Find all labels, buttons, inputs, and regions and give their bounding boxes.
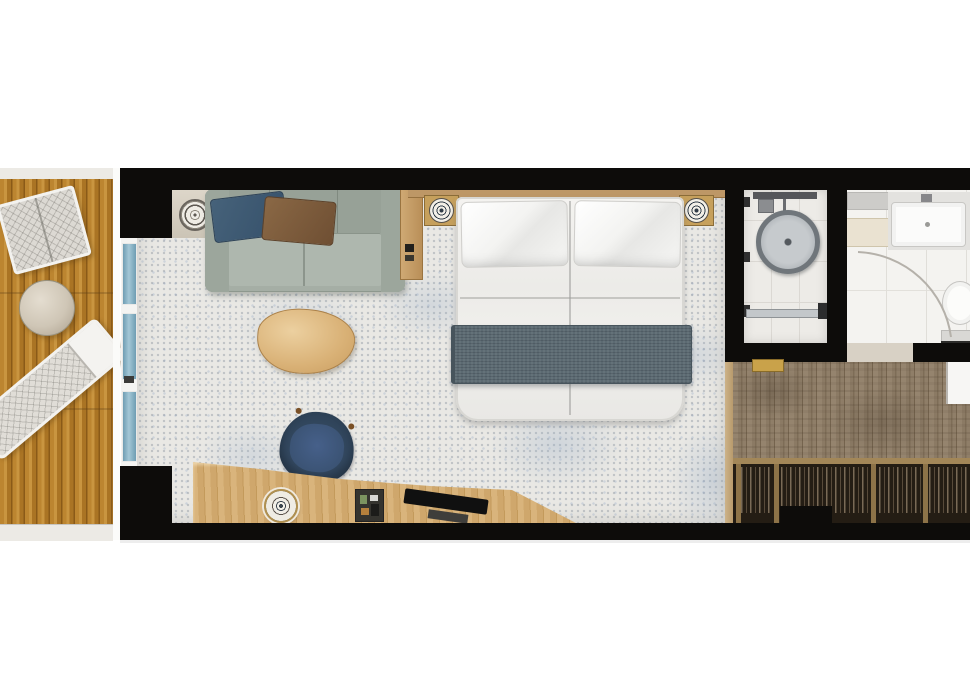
wall-bottom [120,523,970,540]
shower-door-handle [818,303,827,319]
toiletry-shelf [845,218,889,247]
glass-pane [122,243,137,305]
wall-shower-bathroom [827,190,847,352]
wardrobe-closet [733,464,970,523]
glass-clamp [744,197,750,207]
shower-pipe [753,192,817,199]
minibar-tray [355,489,384,522]
wall-top-left-block [120,190,172,238]
armchair-cushion-divider [34,198,53,262]
entry-door [946,362,970,404]
carpet-wood-threshold [725,362,733,523]
bathroom-door-threshold [847,343,913,362]
bathroom [847,190,970,343]
shower-valve [758,199,774,213]
bed-pillow-left [460,200,568,268]
side-shelf [400,188,423,280]
wall-bath-bottom-left [725,343,847,362]
toilet [942,281,970,325]
glass-clamp [744,252,750,262]
entry-hall-floor [733,362,970,458]
double-bed [456,197,684,421]
shower-room [744,190,827,343]
plan-drop-shadow [120,540,970,543]
desk-lamp-icon [264,489,298,523]
balcony-area [0,168,113,540]
shelf-item [405,255,414,261]
floor-plan-canvas [0,0,970,700]
shower-glass-door-track [746,309,827,318]
bed-pillow-right [573,200,681,268]
closet-divider-block [780,506,832,523]
wall-room-shower [725,190,744,352]
glass-door-handle [124,376,134,383]
hanging-clothes [879,467,921,513]
glass-pane [122,391,137,462]
faucet-icon [921,194,932,202]
nightstand-lamp-right-icon [679,195,714,226]
balcony-rail-bottom [0,524,113,541]
wall-top [120,168,970,190]
nightstand-lamp-left-icon [424,195,459,226]
tray-item [360,495,367,504]
desk-chair-seat [288,421,347,474]
duvet-fold-line [460,297,680,299]
balcony-glass-door [121,238,137,466]
throw-pillow-brown [261,196,337,246]
lamp-ornament [684,198,709,223]
closet-post [871,464,876,523]
hanging-clothes [929,467,968,513]
balcony-wall-face [113,168,120,540]
closet-post [774,464,779,523]
closet-post [923,464,928,523]
balcony-round-table [19,280,75,336]
wall-bath-bottom-right [913,343,970,362]
sofa [205,189,405,292]
mirror-cabinet [847,192,889,210]
lamp-ornament [429,198,454,223]
rain-shower-head-icon [756,210,820,274]
tray-item [370,495,378,501]
hanging-clothes [741,467,771,513]
sink-basin [891,202,966,247]
bathroom-door-hinge [752,359,784,372]
sink-drain [925,222,930,227]
glass-pane [122,313,137,380]
bed-runner [451,325,692,384]
tray-item [361,508,369,515]
shelf-item [405,244,414,252]
tray-item [371,504,379,516]
